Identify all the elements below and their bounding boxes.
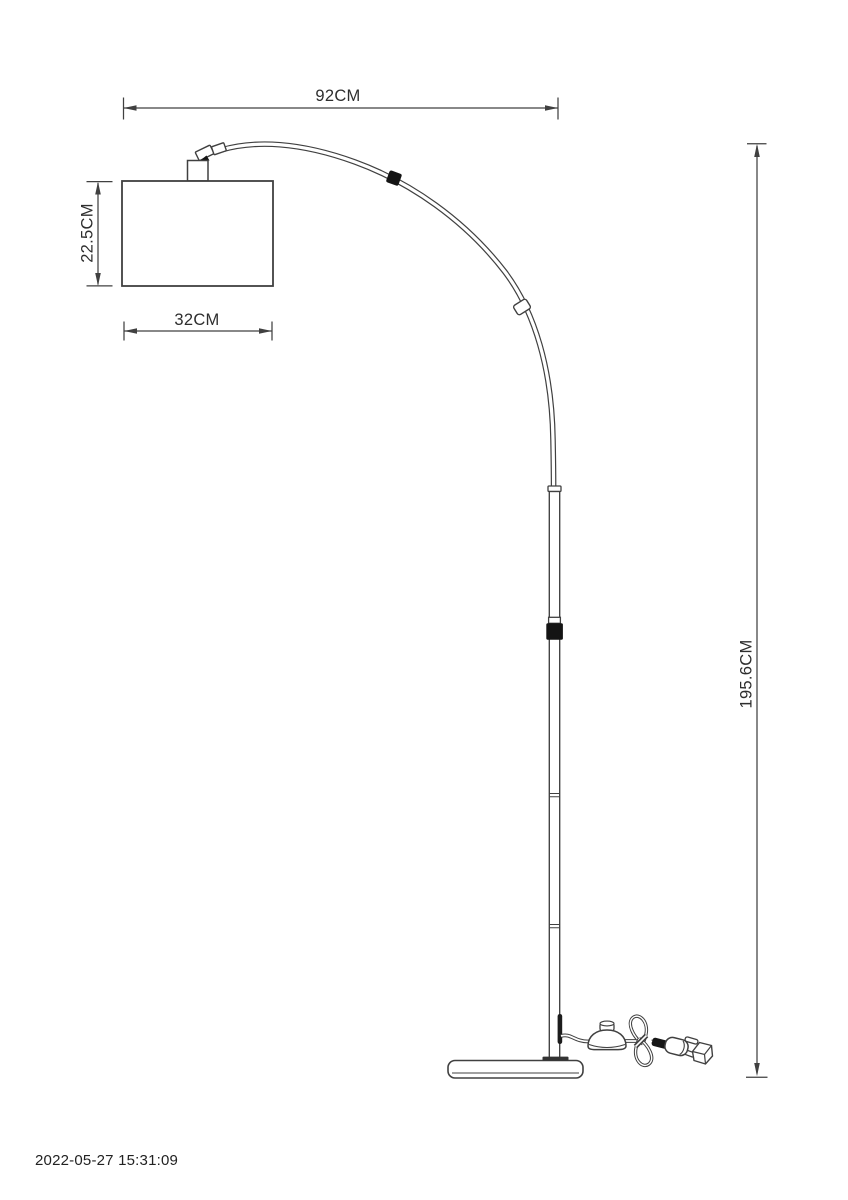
height-adjuster-collar [549, 617, 561, 623]
dim-shade-height-arrow-top [95, 182, 101, 195]
foot-switch-button-top [600, 1021, 614, 1026]
foot-switch [588, 1021, 626, 1050]
dim-label-shade-height: 22.5CM [79, 203, 98, 263]
cord-exit [558, 1014, 563, 1044]
dim-shade-width-arrow-right [259, 328, 272, 333]
lamp-socket [188, 161, 209, 182]
dim-arc-width-arrow-left [124, 105, 137, 111]
arc-pole-coupler [548, 486, 561, 492]
dim-shade-width-arrow-left [124, 328, 137, 333]
head-joint [195, 143, 226, 161]
plug-cap [693, 1043, 713, 1065]
dim-shade-height-arrow-bottom [95, 273, 101, 286]
dim-label-total-height: 195.6CM [738, 639, 757, 708]
head-joint-piece-2 [211, 143, 226, 155]
lamp-shade [122, 181, 273, 286]
foot-switch-dome [588, 1030, 626, 1050]
base-flange [543, 1057, 569, 1061]
dim-total-height-arrow-bottom [754, 1063, 760, 1076]
dim-arc-width-arrow-right [545, 105, 558, 111]
plug [651, 1036, 698, 1058]
dim-total-height-arrow-top [754, 144, 760, 157]
height-adjuster-knob [546, 623, 563, 640]
dim-label-arc-width: 92CM [315, 87, 360, 106]
base [448, 1061, 583, 1079]
plug-cap-outline [693, 1043, 713, 1065]
dim-label-shade-width: 32CM [174, 311, 219, 330]
lamp-technical-drawing [0, 0, 848, 1200]
pole [549, 492, 559, 1061]
timestamp: 2022-05-27 15:31:09 [35, 1152, 178, 1169]
dim-total-height [746, 144, 768, 1077]
drawing-canvas: 92CM 22.5CM 32CM 195.6CM 2022-05-27 15:3… [0, 0, 848, 1200]
